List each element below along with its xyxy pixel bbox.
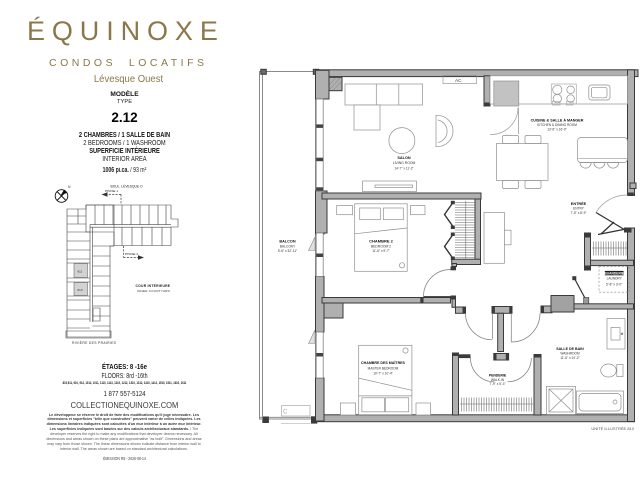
svg-text:MASTER BEDROOM: MASTER BEDROOM [368, 367, 399, 371]
svg-text:WASHROOM: WASHROOM [560, 352, 580, 356]
svg-text:ENTRÉE: ENTRÉE [571, 201, 587, 206]
svg-text:LIVING ROOM: LIVING ROOM [393, 161, 416, 165]
svg-text:CUISINE & SALLE À MANGER: CUISINE & SALLE À MANGER [531, 118, 584, 123]
svg-text:10'-7" x 10'-4": 10'-7" x 10'-4" [373, 371, 393, 375]
svg-text:CHAMBRE DES MAÎTRES: CHAMBRE DES MAÎTRES [361, 360, 406, 365]
svg-text:BALCONY: BALCONY [280, 245, 296, 249]
svg-text:PENDERIE: PENDERIE [489, 374, 507, 378]
svg-text:7'-5" x 8'-9": 7'-5" x 8'-9" [570, 211, 586, 215]
svg-text:ENTRY: ENTRY [573, 207, 585, 211]
svg-text:SALON: SALON [397, 156, 411, 160]
svg-text:BALCON: BALCON [279, 240, 295, 244]
svg-text:5'-8" x 3'-0": 5'-8" x 3'-0" [606, 282, 622, 286]
svg-text:5'-6" x 32'-11": 5'-6" x 32'-11" [278, 249, 297, 253]
svg-text:AC: AC [455, 78, 462, 83]
svg-text:BEDROOM 2: BEDROOM 2 [371, 245, 391, 249]
svg-text:UNITÉ ILLUSTRÉE 810: UNITÉ ILLUSTRÉE 810 [591, 426, 634, 431]
svg-text:SALLE DE BAIN: SALLE DE BAIN [556, 347, 584, 351]
svg-text:14'-7" x 11'-2": 14'-7" x 11'-2" [394, 166, 413, 170]
svg-text:LAUNDRY: LAUNDRY [607, 276, 623, 280]
svg-text:11'-6" x 10'-2": 11'-6" x 10'-2" [560, 356, 579, 360]
svg-text:11'-6" x 9'-7": 11'-6" x 9'-7" [372, 249, 390, 253]
svg-text:13'-6" x 16'-0": 13'-6" x 16'-0" [547, 128, 567, 132]
svg-text:7'-9" x 5'-3": 7'-9" x 5'-3" [489, 382, 505, 386]
svg-text:KITCHEN & DINING ROOM: KITCHEN & DINING ROOM [537, 123, 577, 127]
svg-text:C: C [283, 410, 288, 416]
svg-text:BUANDERIE: BUANDERIE [604, 271, 624, 275]
svg-text:CHAMBRE 2: CHAMBRE 2 [369, 239, 394, 244]
